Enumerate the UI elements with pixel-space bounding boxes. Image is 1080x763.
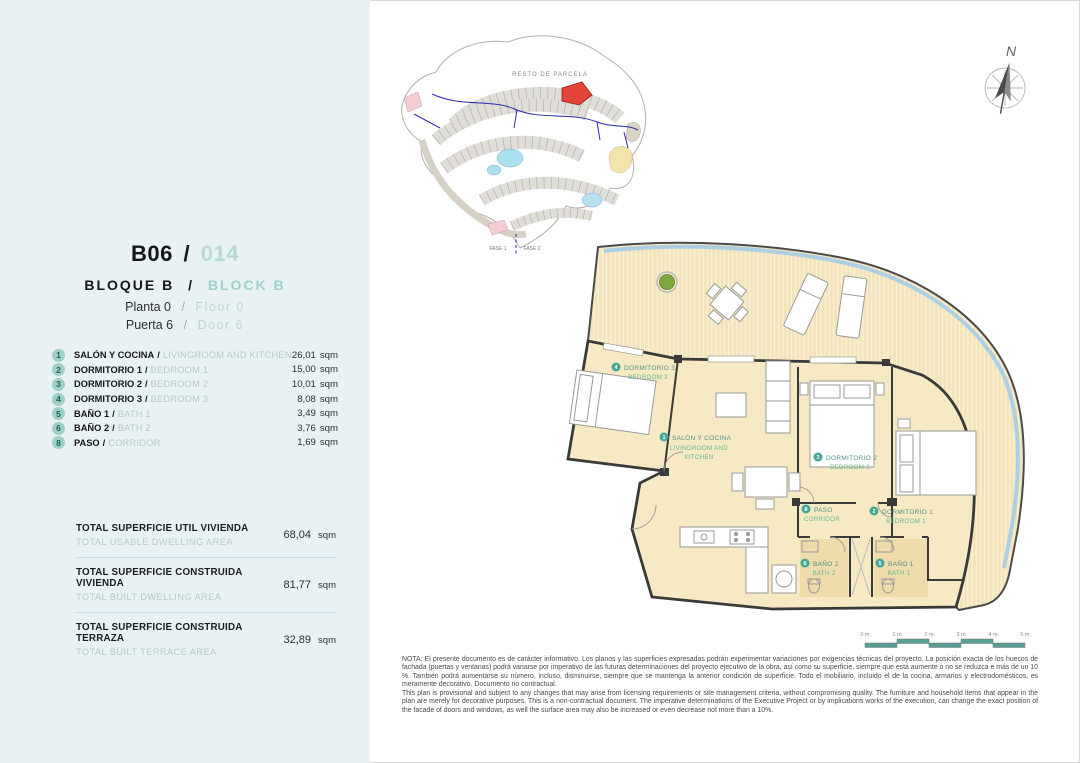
- sofa: [766, 361, 790, 433]
- room-name-en: BEDROOM 1: [151, 365, 209, 375]
- svg-text:BAÑO 1: BAÑO 1: [888, 559, 914, 568]
- room-row-salon: 1 SALÓN Y COCINA/LIVINGROOM AND KITCHEN …: [52, 348, 338, 363]
- svg-text:PASO: PASO: [814, 507, 833, 514]
- room-name-es: PASO: [74, 438, 100, 448]
- total-usable-area: TOTAL SUPERFICIE UTIL VIVIENDA TOTAL USA…: [76, 514, 336, 557]
- room-name-en: BATH 2: [118, 423, 151, 433]
- room-name-separator: /: [112, 409, 115, 419]
- room-row-bedroom3: 4 DORMITORIO 3/BEDROOM 3 8,08sqm: [52, 392, 338, 407]
- svg-text:1 m: 1 m: [892, 632, 902, 638]
- room-name-separator: /: [103, 438, 106, 448]
- room-number-badge: 3: [52, 378, 65, 391]
- total-label-es: TOTAL SUPERFICIE UTIL VIVIENDA: [76, 523, 284, 534]
- room-number-badge: 5: [52, 407, 65, 420]
- room-number-badge: 1: [52, 349, 65, 362]
- total-label-es: TOTAL SUPERFICIE CONSTRUIDA TERRAZA: [76, 622, 284, 644]
- room-row-bedroom2: 3 DORMITORIO 2/BEDROOM 2 10,01sqm: [52, 377, 338, 392]
- room-name-en: BEDROOM 3: [151, 394, 209, 404]
- room-number-badge: 4: [52, 393, 65, 406]
- floor-separator: /: [181, 300, 184, 314]
- room-name-separator: /: [145, 379, 148, 389]
- door-separator: /: [184, 318, 187, 332]
- svg-text:3 m: 3 m: [956, 632, 966, 638]
- total-label-en: TOTAL BUILT DWELLING AREA: [76, 592, 284, 602]
- total-value: 68,04sqm: [284, 529, 336, 541]
- svg-text:3: 3: [816, 455, 819, 461]
- info-sidebar: B06 / 014 BLOQUE B / BLOCK B Planta 0 / …: [0, 0, 370, 763]
- room-area: 8,08sqm: [297, 394, 338, 405]
- north-label: N: [1006, 43, 1017, 59]
- svg-text:6: 6: [803, 561, 806, 567]
- total-label-en: TOTAL USABLE DWELLING AREA: [76, 537, 284, 547]
- room-area: 26,01sqm: [292, 350, 338, 361]
- room-area: 15,00sqm: [292, 364, 338, 375]
- room-name-en: LIVINGROOM AND KITCHEN: [163, 350, 292, 360]
- block-separator: /: [188, 277, 194, 293]
- room-name-separator: /: [157, 350, 160, 360]
- room-area: 3,76sqm: [297, 423, 338, 434]
- svg-text:4 m: 4 m: [988, 632, 998, 638]
- floor-plan-document: B06 / 014 BLOQUE B / BLOCK B Planta 0 / …: [0, 0, 1080, 763]
- total-label-es: TOTAL SUPERFICIE CONSTRUIDA VIVIENDA: [76, 567, 284, 589]
- totals-section: TOTAL SUPERFICIE UTIL VIVIENDA TOTAL USA…: [76, 514, 336, 667]
- svg-text:2 m: 2 m: [924, 632, 934, 638]
- svg-text:DORMITORIO 3: DORMITORIO 3: [624, 365, 675, 372]
- svg-text:BEDROOM 2: BEDROOM 2: [830, 464, 870, 471]
- room-name-es: BAÑO 1: [74, 409, 109, 419]
- room-area: 10,01sqm: [292, 379, 338, 390]
- block-label-es: BLOQUE B: [84, 277, 174, 293]
- room-name-es: DORMITORIO 3: [74, 394, 142, 404]
- total-label-en: TOTAL BUILT TERRACE AREA: [76, 647, 284, 657]
- door-label-es: Puerta 6: [126, 318, 173, 332]
- scale-bar: 0 m 1 m 2 m 3 m 4 m 5 m: [858, 624, 1040, 654]
- svg-text:2: 2: [872, 509, 875, 515]
- room-name-es: DORMITORIO 2: [74, 379, 142, 389]
- floor-label-en: Floor 0: [195, 300, 244, 314]
- room-name-en: CORRIDOR: [108, 438, 160, 448]
- svg-text:BATH 1: BATH 1: [887, 570, 910, 577]
- note-spanish: NOTA: El presente documento es de caráct…: [402, 656, 1038, 690]
- room-name-separator: /: [145, 394, 148, 404]
- phase-2-label: FASE 2: [524, 246, 541, 252]
- svg-text:1: 1: [662, 435, 665, 441]
- room-area: 1,69sqm: [297, 437, 338, 448]
- svg-text:5: 5: [878, 561, 881, 567]
- svg-text:BAÑO 2: BAÑO 2: [813, 559, 839, 568]
- block-label-en: BLOCK B: [208, 277, 286, 293]
- bath2-floor: [800, 539, 848, 597]
- plant: [660, 275, 675, 290]
- svg-text:BATH 2: BATH 2: [812, 570, 835, 577]
- svg-text:0 m: 0 m: [860, 632, 870, 638]
- total-value: 32,89sqm: [284, 634, 336, 646]
- svg-text:KITCHEN: KITCHEN: [684, 454, 713, 461]
- room-row-bath2: 6 BAÑO 2/BATH 2 3,76sqm: [52, 421, 338, 436]
- bath1-floor: [874, 539, 928, 597]
- room-name-en: BATH 1: [118, 409, 151, 419]
- site-plan: RESTO DE PARCELA FASE 1 FASE 2: [392, 28, 657, 258]
- unit-number: 014: [201, 241, 239, 266]
- door-line: Puerta 6 / Door 6: [0, 318, 370, 332]
- room-name-es: BAÑO 2: [74, 423, 109, 433]
- unit-title: B06 / 014: [0, 241, 370, 267]
- room-number-badge: 8: [52, 436, 65, 449]
- floor-line: Planta 0 / Floor 0: [0, 300, 370, 314]
- svg-text:BEDROOM 1: BEDROOM 1: [886, 518, 926, 525]
- block-line: BLOQUE B / BLOCK B: [0, 277, 370, 293]
- svg-text:DORMITORIO 1: DORMITORIO 1: [882, 509, 933, 516]
- door-label-en: Door 6: [198, 318, 245, 332]
- svg-text:5 m: 5 m: [1020, 632, 1030, 638]
- floor-label-es: Planta 0: [125, 300, 171, 314]
- parcel-label: RESTO DE PARCELA: [512, 72, 588, 78]
- total-value: 81,77sqm: [284, 579, 336, 591]
- svg-text:DORMITORIO 2: DORMITORIO 2: [826, 455, 877, 462]
- svg-text:8: 8: [804, 507, 807, 513]
- room-row-bedroom1: 2 DORMITORIO 1/BEDROOM 1 15,00sqm: [52, 363, 338, 378]
- disclaimer-note: NOTA: El presente documento es de caráct…: [402, 656, 1038, 715]
- coffee-table: [716, 393, 746, 417]
- room-number-badge: 2: [52, 363, 65, 376]
- total-built-terrace-area: TOTAL SUPERFICIE CONSTRUIDA TERRAZA TOTA…: [76, 612, 336, 667]
- scale-segments: [865, 639, 1025, 648]
- room-row-bath1: 5 BAÑO 1/BATH 1 3,49sqm: [52, 406, 338, 421]
- svg-text:CORRIDOR: CORRIDOR: [804, 516, 840, 523]
- svg-text:BEDROOM 3: BEDROOM 3: [628, 374, 668, 381]
- room-name-en: BEDROOM 2: [151, 379, 209, 389]
- compass-rose: N: [973, 30, 1048, 125]
- room-name-separator: /: [145, 365, 148, 375]
- room-number-badge: 6: [52, 422, 65, 435]
- room-name-es: DORMITORIO 1: [74, 365, 142, 375]
- svg-text:LIVINGROOM AND: LIVINGROOM AND: [670, 445, 728, 452]
- total-built-dwelling-area: TOTAL SUPERFICIE CONSTRUIDA VIVIENDA TOT…: [76, 557, 336, 612]
- room-name-es: SALÓN Y COCINA: [74, 350, 154, 360]
- room-name-separator: /: [112, 423, 115, 433]
- apartment-floor-plan: 1 SALÓN Y COCINA LIVINGROOM AND KITCHEN …: [560, 235, 1045, 627]
- scale-labels: 0 m 1 m 2 m 3 m 4 m 5 m: [860, 632, 1030, 638]
- room-row-corridor: 8 PASO/CORRIDOR 1,69sqm: [52, 436, 338, 451]
- room-area: 3,49sqm: [297, 408, 338, 419]
- room-list: 1 SALÓN Y COCINA/LIVINGROOM AND KITCHEN …: [52, 348, 338, 450]
- unit-code: B06: [131, 241, 173, 266]
- note-english: This plan is provisional and subject to …: [402, 690, 1038, 715]
- svg-text:SALÓN Y COCINA: SALÓN Y COCINA: [672, 433, 732, 442]
- phase-1-label: FASE 1: [490, 246, 507, 252]
- unit-separator: /: [184, 241, 191, 266]
